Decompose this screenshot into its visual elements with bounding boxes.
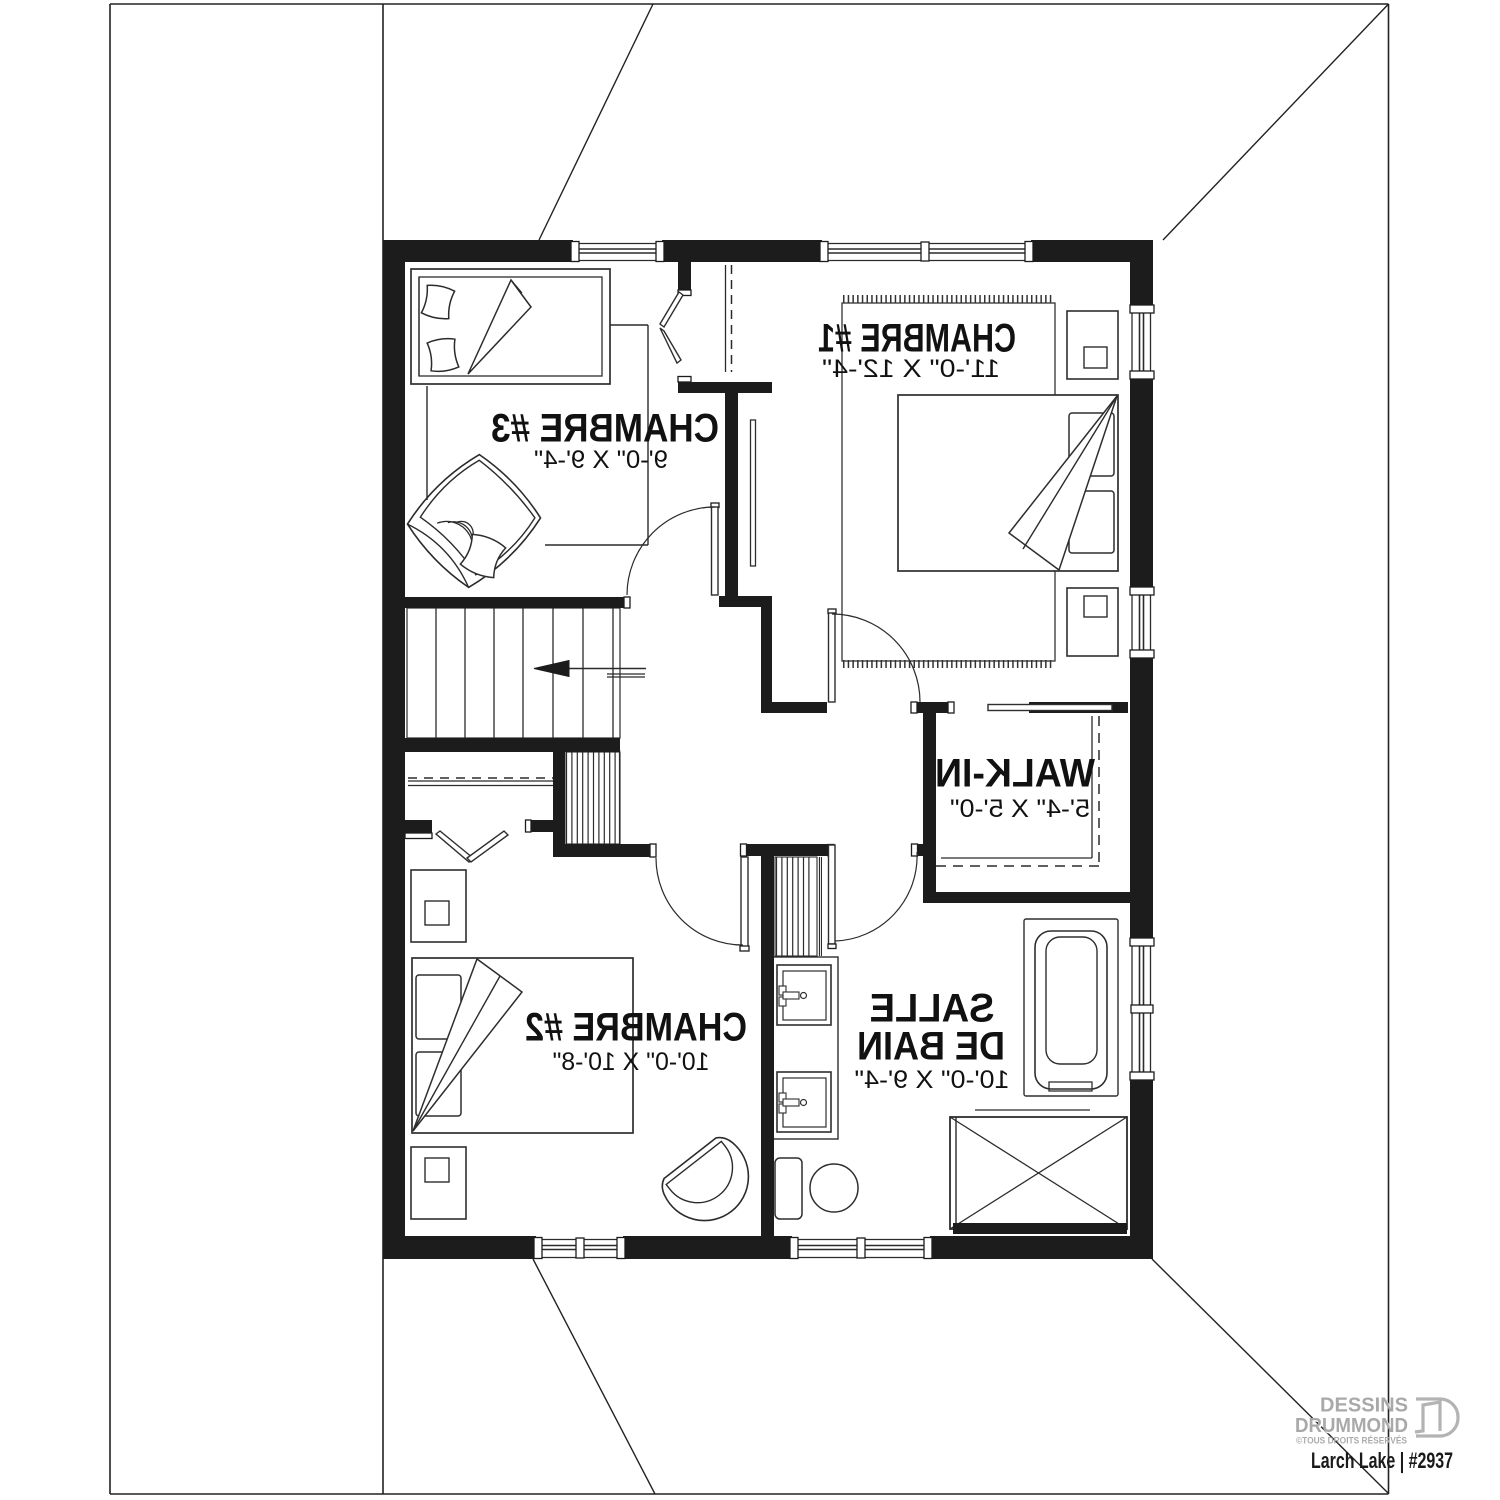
svg-text:CHAMBRE #1: CHAMBRE #1	[818, 317, 1016, 361]
svg-text:10'-0" X 9'-4": 10'-0" X 9'-4"	[855, 1066, 1010, 1094]
svg-text:CHAMBRE #3: CHAMBRE #3	[491, 407, 719, 451]
svg-text:10'-0" X 10'-8": 10'-0" X 10'-8"	[553, 1048, 710, 1076]
svg-text:CHAMBRE #2: CHAMBRE #2	[525, 1006, 747, 1050]
svg-text:11'-0" X 12'-4": 11'-0" X 12'-4"	[822, 355, 1000, 383]
svg-text:©TOUS DROITS RÉSERVÉS: ©TOUS DROITS RÉSERVÉS	[1296, 1436, 1407, 1447]
svg-text:Larch Lake | #2937: Larch Lake | #2937	[1311, 1448, 1453, 1473]
svg-text:5'-4" X 5'-0": 5'-4" X 5'-0"	[950, 795, 1090, 823]
svg-text:DE BAIN: DE BAIN	[857, 1025, 1005, 1069]
svg-text:9'-0" X 9'-4": 9'-0" X 9'-4"	[534, 446, 668, 474]
svg-text:DRUMMOND: DRUMMOND	[1295, 1414, 1408, 1437]
svg-text:WALK-IN: WALK-IN	[935, 752, 1095, 796]
